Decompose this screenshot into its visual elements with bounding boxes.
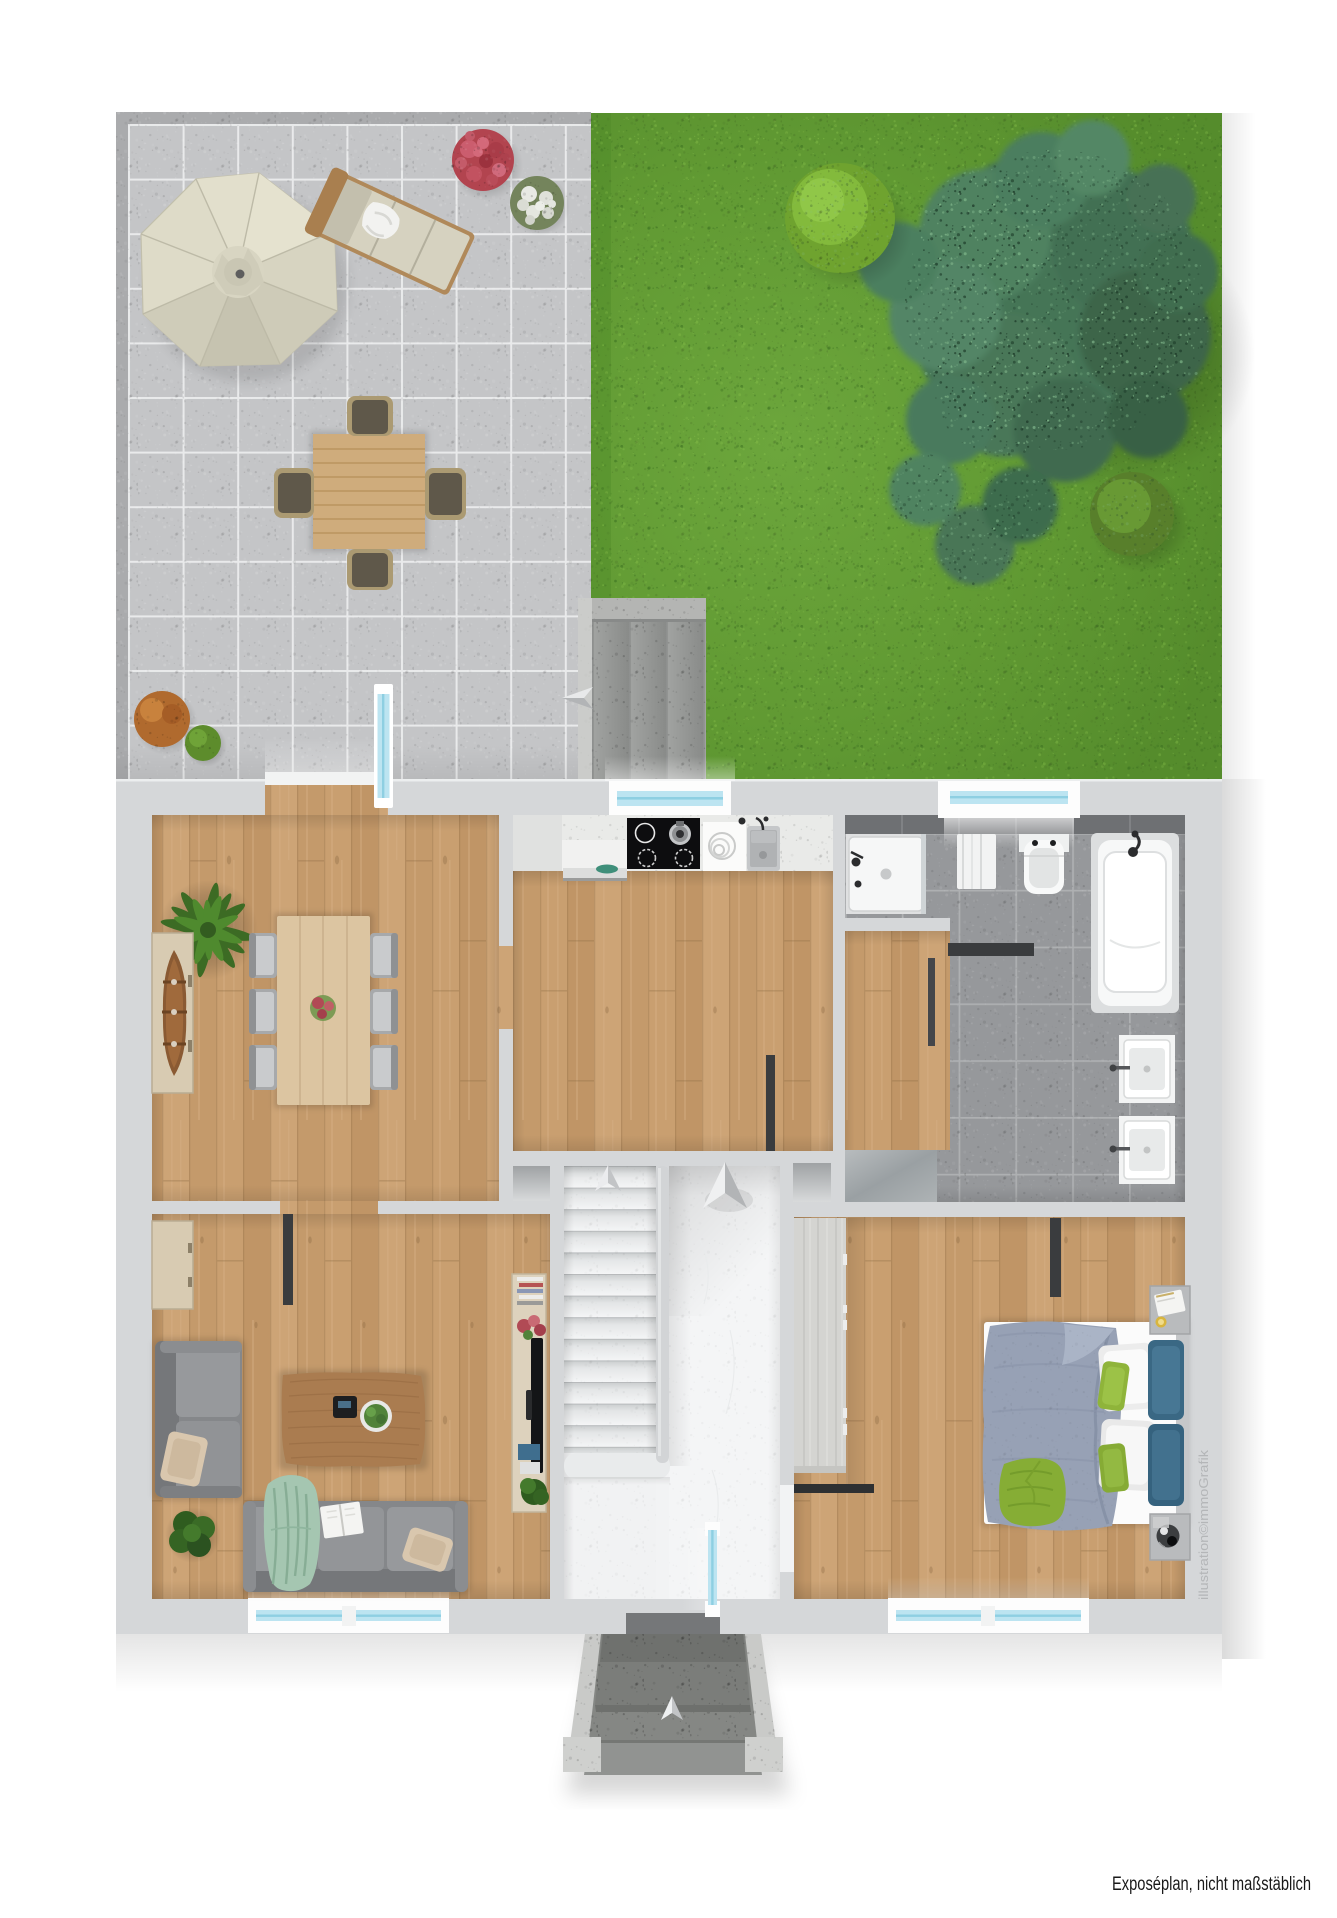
svg-text:Exposéplan, nicht maßstäblich: Exposéplan, nicht maßstäblich — [1112, 1874, 1311, 1895]
svg-text:illustration©immoGrafik: illustration©immoGrafik — [1196, 1449, 1211, 1600]
